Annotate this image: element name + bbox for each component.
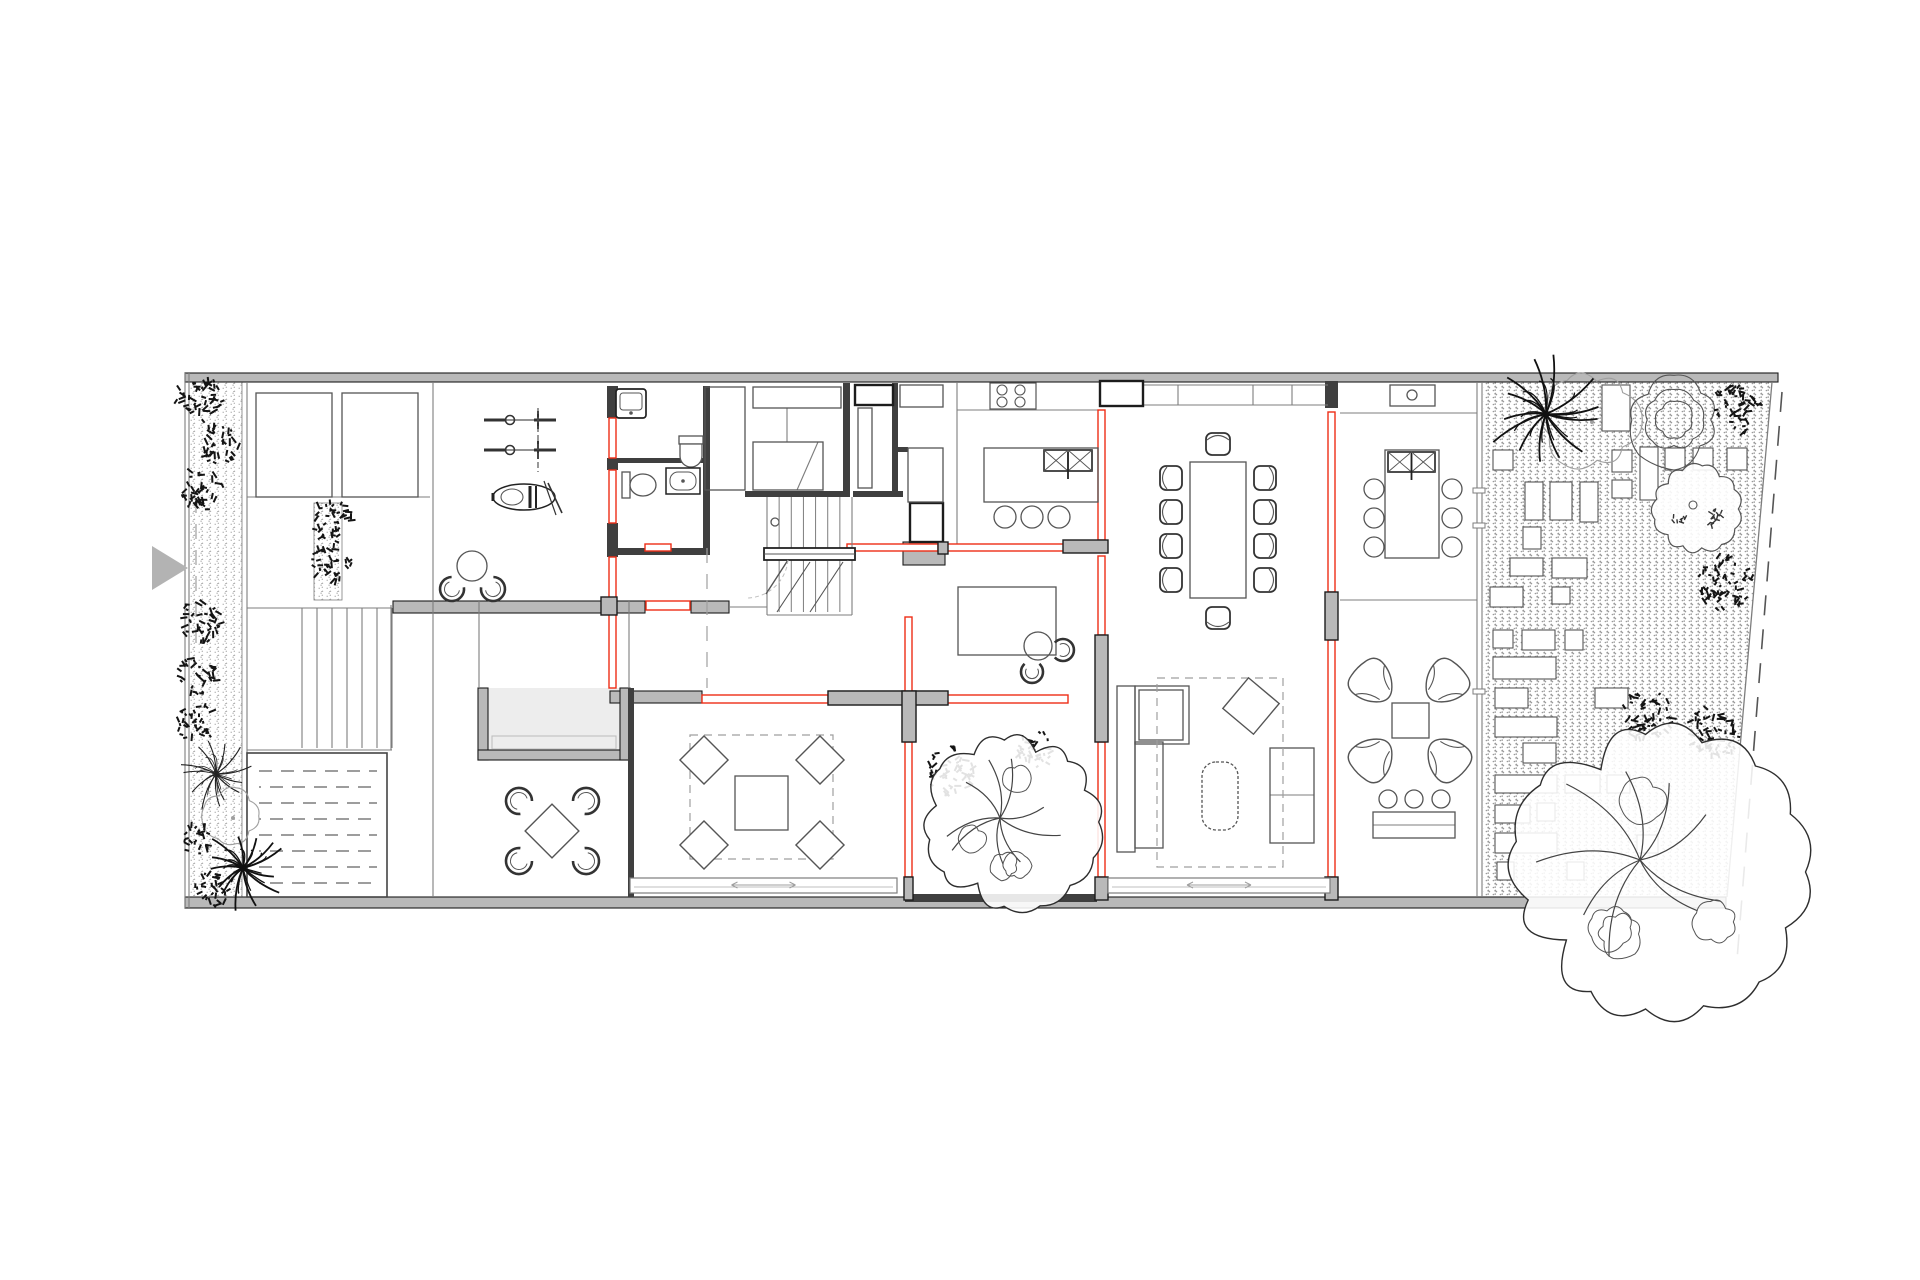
column (904, 877, 913, 900)
paver (1493, 630, 1513, 648)
stool (771, 518, 779, 526)
paver (1552, 587, 1570, 604)
stool (1407, 390, 1417, 400)
rotated-seat (796, 821, 844, 869)
column (902, 691, 916, 742)
ottoman (1202, 762, 1238, 830)
glazing-red (905, 617, 912, 693)
paver (1525, 482, 1543, 520)
column (828, 691, 948, 705)
furniture (1139, 690, 1183, 740)
wall (691, 601, 729, 613)
paver (1523, 527, 1541, 549)
ring-chair (506, 848, 532, 874)
stair (748, 497, 855, 615)
furniture (1135, 742, 1163, 848)
rotated-seat (680, 821, 728, 869)
column (1095, 877, 1108, 900)
rotated-seat (1223, 678, 1279, 734)
furniture (900, 385, 943, 407)
glazing-red (1098, 410, 1105, 540)
furniture (1390, 385, 1435, 406)
wall-dark (745, 491, 845, 497)
lounge-chair (1417, 728, 1477, 788)
furniture (1117, 686, 1135, 852)
stool (1442, 479, 1462, 499)
furniture (753, 442, 823, 490)
furniture (705, 387, 745, 490)
furniture (342, 393, 418, 497)
dining-chair (1160, 466, 1182, 490)
wall (185, 373, 1778, 382)
stool (1024, 632, 1052, 660)
column (1063, 540, 1108, 553)
wall-dark (607, 523, 618, 557)
column (938, 542, 948, 554)
glazing-red (609, 612, 616, 688)
paver (1552, 558, 1587, 578)
rotated-seat (796, 736, 844, 784)
furniture (735, 776, 788, 830)
stool (457, 551, 487, 581)
ring-chair (1055, 639, 1074, 661)
glazing-red (905, 742, 912, 877)
dining-chair (1254, 466, 1276, 490)
mullion-tick (1473, 488, 1485, 493)
double-sink (1388, 452, 1435, 480)
stool (1442, 508, 1462, 528)
ring-chair (1021, 664, 1043, 683)
paver (1495, 688, 1528, 708)
wall-dark (853, 491, 903, 497)
dining-chair (1160, 500, 1182, 524)
dining-chair (1160, 568, 1182, 592)
ring-chair (573, 848, 599, 874)
paver (1523, 743, 1556, 763)
furniture (958, 587, 1056, 655)
paver (1490, 587, 1523, 607)
stool (1432, 790, 1450, 808)
paver (1612, 480, 1632, 498)
stool (1405, 790, 1423, 808)
glazing-red (609, 418, 616, 458)
paver (1665, 448, 1685, 470)
wall-dark (628, 688, 634, 897)
glazing-red (947, 544, 1065, 551)
dining-chair (1160, 534, 1182, 558)
lounge-chair (1415, 653, 1475, 713)
floor-plan-page (0, 0, 1920, 1280)
rotated-seat (680, 736, 728, 784)
stool (994, 506, 1016, 528)
sliding-door (1108, 878, 1330, 893)
ring-chair (481, 577, 505, 601)
furniture (908, 448, 943, 502)
rotated-seat (525, 804, 579, 858)
scooter (493, 481, 562, 515)
paver (1580, 482, 1598, 522)
dining-chair (1206, 607, 1230, 629)
glazing-red (1328, 640, 1335, 877)
paver (1640, 447, 1658, 500)
paver (1522, 630, 1555, 650)
lounge-chair (1343, 728, 1403, 788)
column (1325, 592, 1338, 640)
floor-plan-drawing (0, 0, 1920, 1280)
column (1095, 635, 1108, 742)
dining-chair (1254, 534, 1276, 558)
entry-arrow-icon (152, 546, 188, 590)
dining-chair (1254, 500, 1276, 524)
glazing-red (645, 544, 671, 551)
furniture (753, 387, 841, 408)
glazing-red (702, 695, 828, 703)
glazing-red (847, 544, 938, 551)
bath-fixtures (616, 389, 703, 498)
paver (1727, 448, 1747, 470)
stool (1442, 537, 1462, 557)
stool (1364, 508, 1384, 528)
marker-layer (152, 546, 188, 590)
stove (990, 383, 1036, 409)
ring-chair (506, 788, 532, 814)
wall-dark (607, 458, 618, 470)
paver (1510, 558, 1543, 576)
column (601, 597, 617, 615)
glazing-red (947, 695, 1068, 703)
mullion-tick (1473, 523, 1485, 528)
glazing-red (1098, 556, 1105, 635)
paver (1495, 717, 1557, 737)
ring-chair (440, 577, 464, 601)
wall (478, 688, 488, 760)
glazing-red (1328, 412, 1335, 592)
furniture-layer (247, 383, 1477, 897)
stool (1379, 790, 1397, 808)
stool (1364, 537, 1384, 557)
stool (1048, 506, 1070, 528)
canopy-tree (1508, 723, 1811, 1022)
wall-niche (1100, 381, 1143, 406)
glazing-red (609, 557, 616, 600)
double-sink (1044, 450, 1092, 479)
glazing-red (646, 601, 690, 610)
wall (478, 750, 630, 760)
wall-niche (855, 385, 893, 405)
paver (1565, 630, 1583, 650)
bicycle (484, 411, 556, 429)
dining-chair (1206, 433, 1230, 455)
lounge-chair (1343, 653, 1403, 713)
wall-dark (895, 447, 908, 452)
wall-dark (843, 383, 850, 497)
paver (1602, 385, 1630, 431)
paver (1493, 450, 1513, 470)
bicycle (484, 441, 556, 459)
ring-chair (573, 788, 599, 814)
wall-line (797, 442, 818, 490)
furniture (1392, 703, 1429, 738)
paver (1550, 482, 1572, 520)
wall-dark (703, 386, 710, 551)
furniture (1135, 686, 1189, 744)
canopy-tree (924, 735, 1103, 913)
stool (1021, 506, 1043, 528)
sliding-door (630, 878, 897, 893)
furniture (256, 393, 332, 497)
furniture (858, 408, 872, 488)
wall-niche (910, 503, 943, 542)
mullion-tick (1473, 689, 1485, 694)
lightwell-floor (488, 688, 620, 750)
dining-chair (1254, 568, 1276, 592)
furniture (1190, 462, 1246, 598)
glazing-red (609, 470, 616, 523)
paver (1493, 657, 1556, 679)
stool (1364, 479, 1384, 499)
